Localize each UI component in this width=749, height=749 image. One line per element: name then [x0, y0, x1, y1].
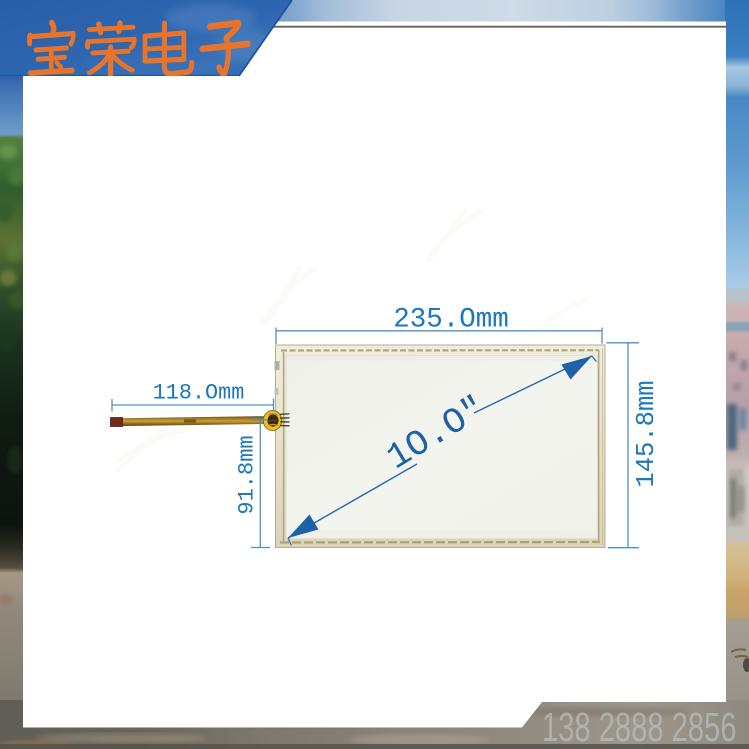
svg-text:91.8mm: 91.8mm [235, 435, 260, 514]
svg-text:138 2888 2856: 138 2888 2856 [542, 705, 736, 749]
svg-text:145.8mm: 145.8mm [632, 380, 661, 487]
svg-text:235.Omm: 235.Omm [393, 305, 509, 336]
svg-text:118.Omm: 118.Omm [153, 381, 245, 406]
